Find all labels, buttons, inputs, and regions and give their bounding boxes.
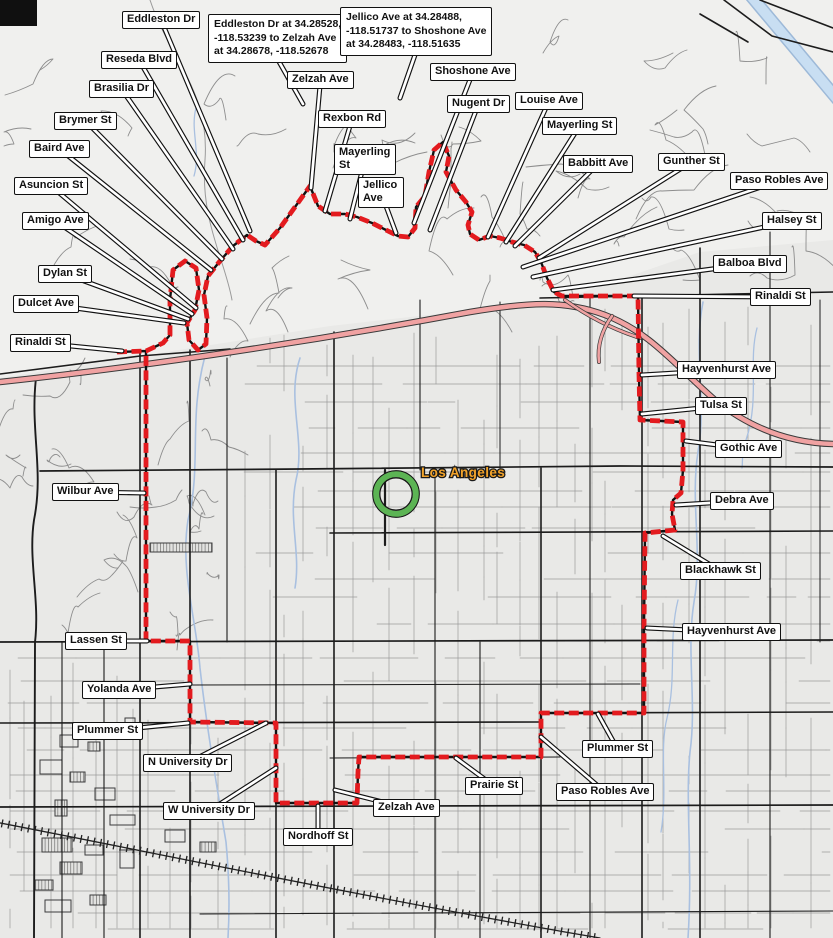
city-label: Los Angeles: [421, 465, 505, 480]
map-background: [0, 0, 833, 938]
map-art: Los Angeles: [0, 0, 833, 938]
map-canvas[interactable]: Los Angeles Eddleston DrReseda BlvdBrasi…: [0, 0, 833, 938]
city-name-text: Los Angeles: [421, 465, 505, 480]
